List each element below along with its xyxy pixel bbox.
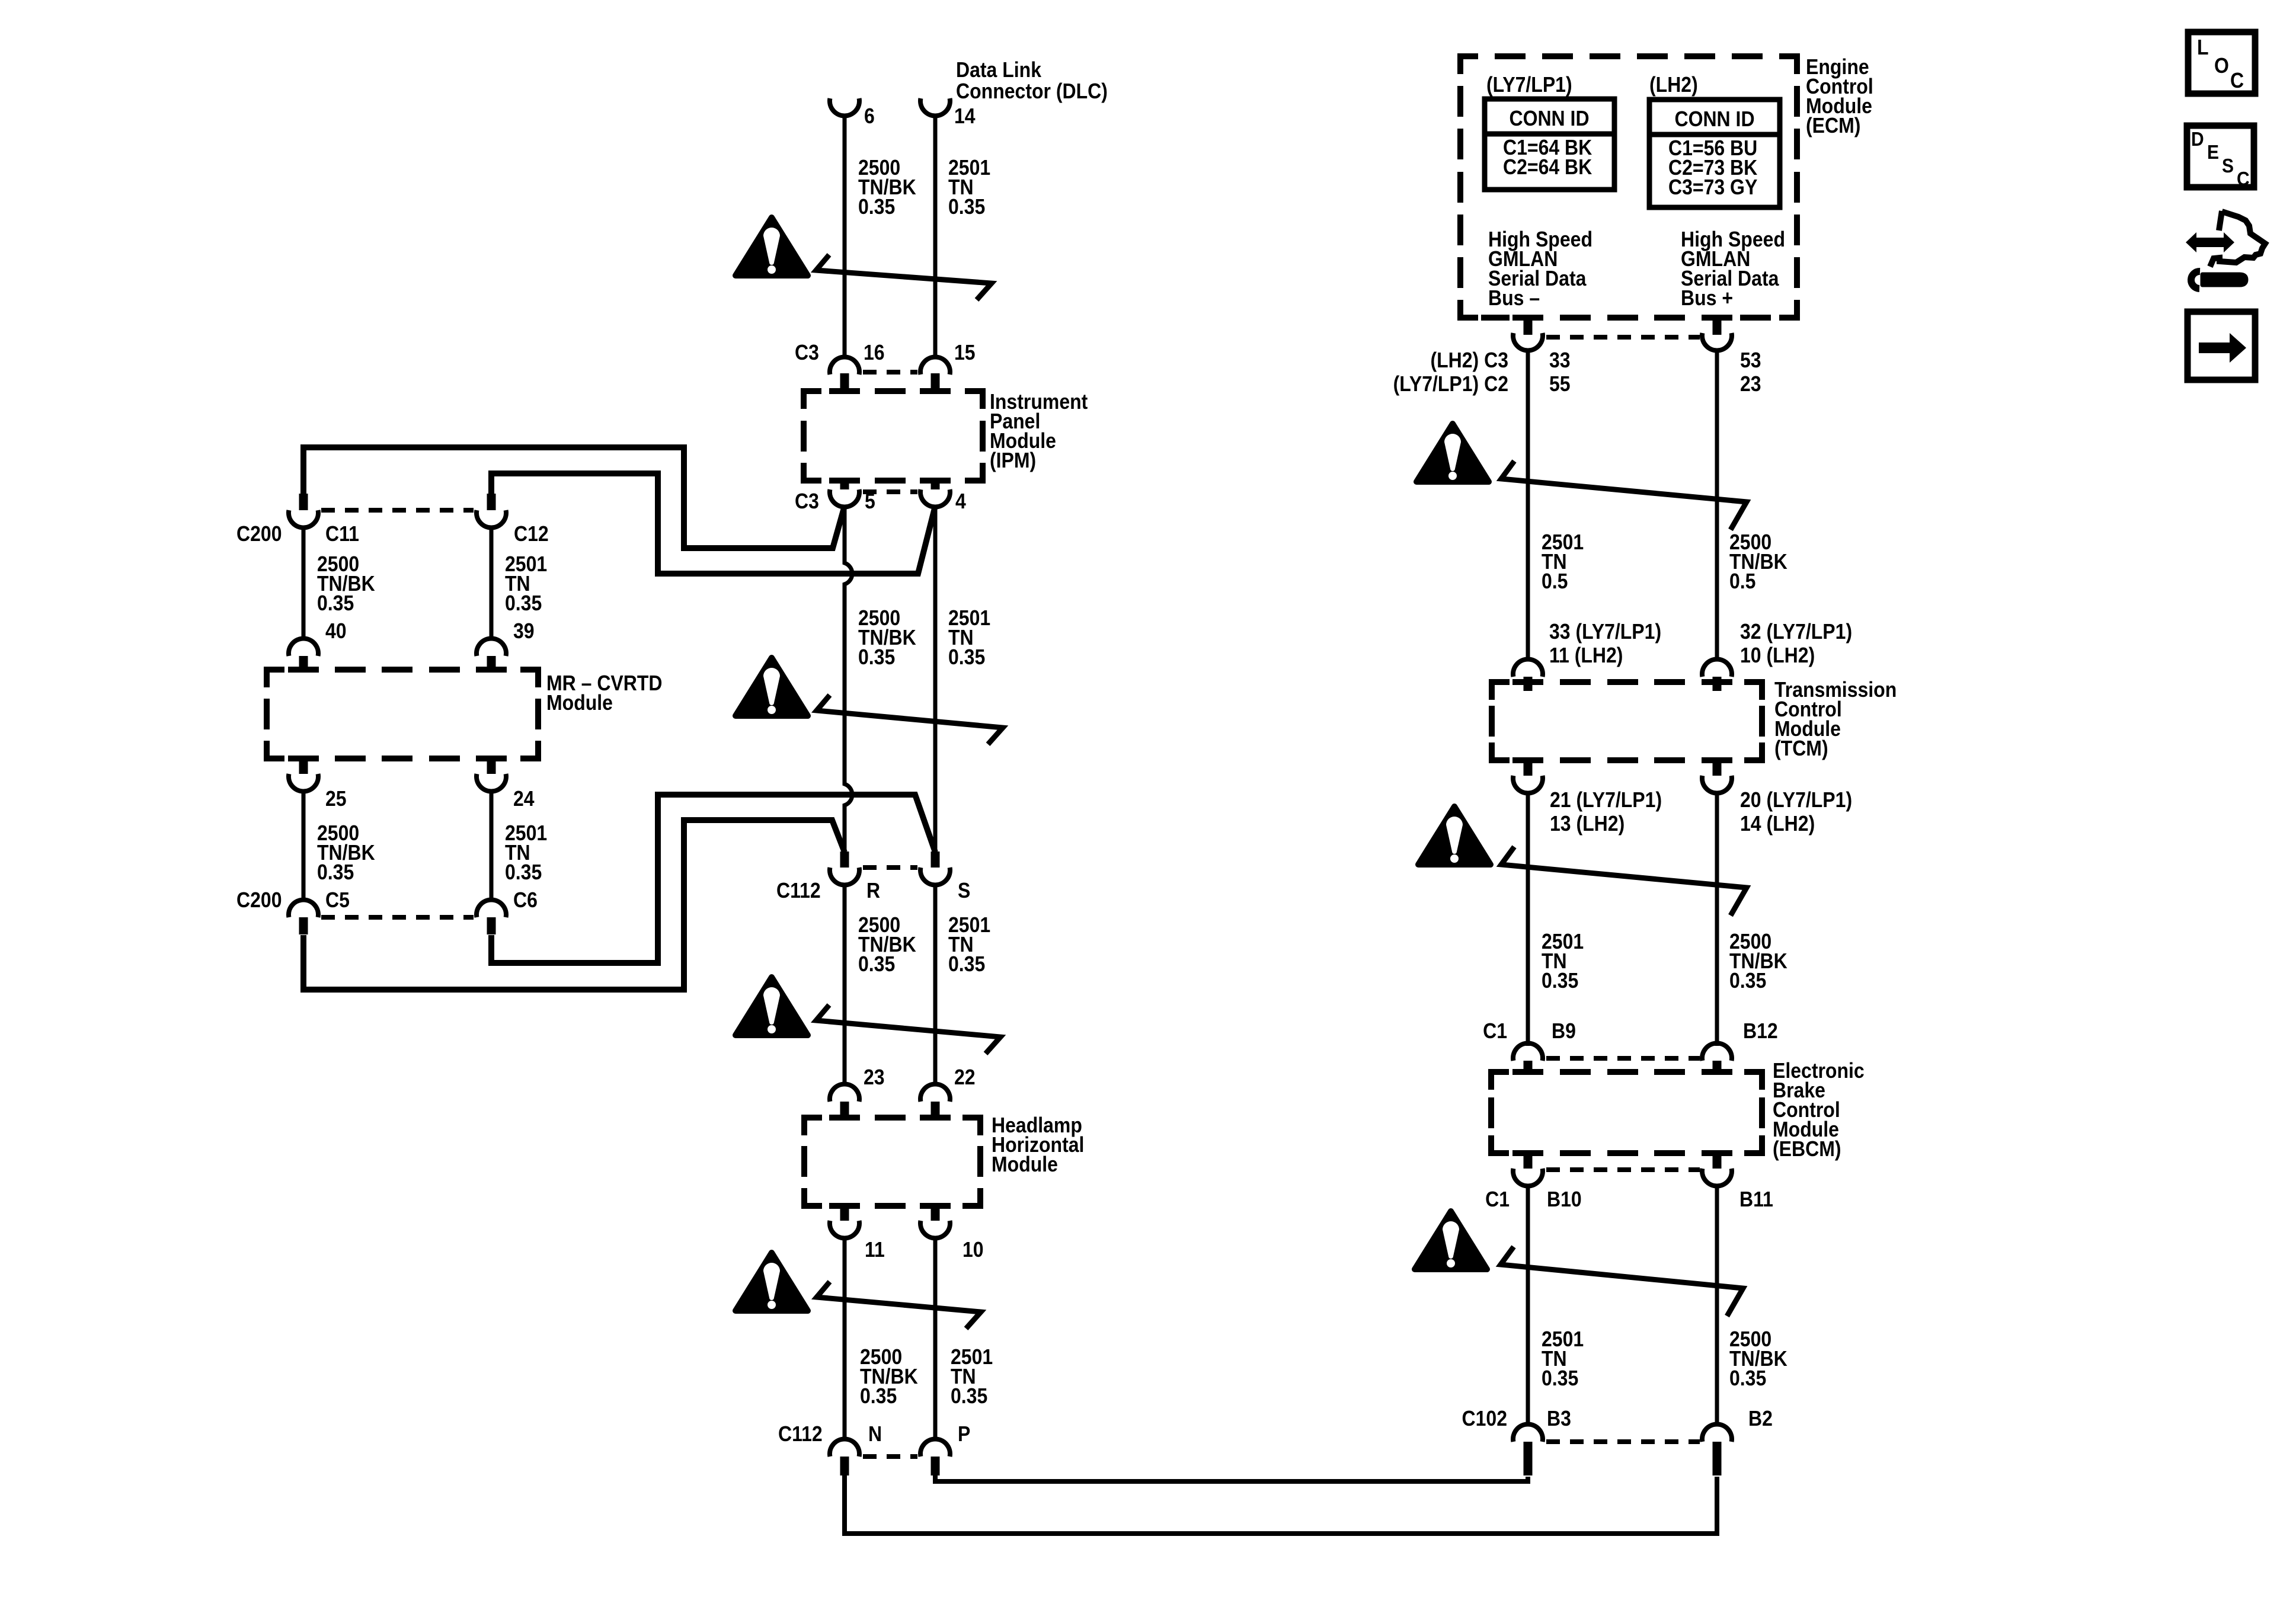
svg-text:0.35: 0.35: [858, 645, 895, 669]
svg-text:(IPM): (IPM): [990, 449, 1036, 472]
svg-text:55: 55: [1549, 372, 1571, 396]
svg-text:(LY7/LP1): (LY7/LP1): [1486, 73, 1572, 97]
svg-text:C12: C12: [514, 522, 549, 546]
svg-text:Bus –: Bus –: [1488, 286, 1540, 310]
svg-text:B11: B11: [1739, 1188, 1773, 1211]
svg-text:B9: B9: [1552, 1019, 1576, 1043]
svg-text:14 (LH2): 14 (LH2): [1740, 812, 1815, 836]
svg-text:40: 40: [325, 619, 347, 643]
svg-text:11 (LH2): 11 (LH2): [1549, 644, 1623, 667]
svg-text:0.35: 0.35: [1729, 969, 1766, 993]
svg-text:B10: B10: [1547, 1188, 1582, 1211]
svg-text:B12: B12: [1743, 1019, 1778, 1043]
svg-text:53: 53: [1740, 348, 1761, 372]
svg-text:0.35: 0.35: [860, 1384, 897, 1408]
svg-text:C1: C1: [1483, 1019, 1507, 1043]
svg-text:0.35: 0.35: [505, 591, 542, 615]
svg-text:(EBCM): (EBCM): [1773, 1137, 1841, 1161]
svg-text:C3=73 GY: C3=73 GY: [1668, 175, 1758, 199]
svg-text:6: 6: [864, 104, 875, 128]
svg-text:0.35: 0.35: [948, 645, 985, 669]
svg-text:0.35: 0.35: [317, 591, 354, 615]
svg-text:C3: C3: [795, 341, 819, 364]
svg-text:C6: C6: [513, 888, 538, 912]
svg-text:Module: Module: [546, 691, 613, 715]
svg-text:10 (LH2): 10 (LH2): [1740, 644, 1815, 667]
svg-text:0.35: 0.35: [1542, 1366, 1578, 1390]
svg-text:E: E: [2207, 140, 2219, 163]
svg-text:CONN ID: CONN ID: [1674, 107, 1754, 131]
svg-text:R: R: [866, 879, 880, 902]
svg-text:B2: B2: [1748, 1407, 1773, 1430]
svg-text:CONN ID: CONN ID: [1509, 107, 1589, 130]
svg-text:24: 24: [513, 787, 535, 811]
svg-text:23: 23: [1740, 372, 1761, 396]
svg-text:C200: C200: [236, 522, 282, 546]
svg-text:22: 22: [954, 1065, 976, 1089]
svg-text:16: 16: [864, 341, 885, 364]
svg-text:0.35: 0.35: [317, 860, 354, 884]
svg-text:Data Link: Data Link: [956, 58, 1041, 82]
svg-text:C: C: [2230, 69, 2244, 92]
svg-text:33: 33: [1549, 348, 1571, 372]
svg-text:D: D: [2191, 127, 2204, 150]
svg-text:21 (LY7/LP1): 21 (LY7/LP1): [1550, 788, 1662, 812]
svg-text:S: S: [958, 879, 970, 902]
svg-text:(LH2) C3: (LH2) C3: [1430, 348, 1508, 372]
svg-text:C3: C3: [795, 489, 819, 513]
svg-text:C200: C200: [236, 888, 282, 912]
svg-text:B3: B3: [1547, 1407, 1571, 1430]
svg-text:33 (LY7/LP1): 33 (LY7/LP1): [1549, 620, 1661, 644]
svg-text:C1: C1: [1485, 1188, 1510, 1211]
svg-text:P: P: [958, 1422, 970, 1446]
svg-text:20 (LY7/LP1): 20 (LY7/LP1): [1740, 788, 1852, 812]
svg-text:15: 15: [954, 341, 976, 364]
svg-text:13 (LH2): 13 (LH2): [1550, 812, 1625, 836]
svg-text:C5: C5: [325, 888, 350, 912]
svg-text:(LH2): (LH2): [1649, 73, 1698, 97]
svg-text:11: 11: [865, 1238, 885, 1262]
svg-text:C112: C112: [778, 1422, 823, 1446]
svg-text:(LY7/LP1) C2: (LY7/LP1) C2: [1393, 372, 1508, 396]
svg-text:C: C: [2237, 167, 2250, 190]
svg-text:0.35: 0.35: [1542, 969, 1578, 993]
svg-text:0.35: 0.35: [1729, 1366, 1766, 1390]
svg-text:Bus +: Bus +: [1681, 286, 1733, 310]
svg-text:0.35: 0.35: [858, 952, 895, 976]
svg-text:L: L: [2197, 36, 2209, 59]
svg-text:Module: Module: [992, 1153, 1058, 1176]
svg-text:0.35: 0.35: [948, 952, 985, 976]
svg-text:Connector (DLC): Connector (DLC): [956, 79, 1108, 103]
svg-text:O: O: [2214, 54, 2229, 78]
svg-text:0.35: 0.35: [505, 860, 542, 884]
svg-text:S: S: [2222, 154, 2234, 177]
svg-text:C2=64 BK: C2=64 BK: [1503, 155, 1593, 179]
svg-text:0.5: 0.5: [1542, 569, 1568, 593]
svg-text:0.35: 0.35: [858, 195, 895, 219]
svg-text:14: 14: [954, 104, 976, 128]
svg-text:N: N: [868, 1422, 882, 1446]
svg-text:C11: C11: [325, 522, 359, 546]
svg-text:32 (LY7/LP1): 32 (LY7/LP1): [1740, 620, 1852, 644]
svg-text:0.35: 0.35: [948, 195, 985, 219]
svg-text:(ECM): (ECM): [1806, 114, 1860, 137]
svg-text:C112: C112: [776, 879, 821, 902]
svg-text:23: 23: [864, 1065, 885, 1089]
svg-text:C102: C102: [1462, 1407, 1507, 1430]
svg-text:(TCM): (TCM): [1774, 737, 1828, 760]
svg-text:25: 25: [325, 787, 347, 811]
svg-text:4: 4: [955, 489, 966, 513]
svg-text:10: 10: [962, 1238, 984, 1262]
svg-text:0.5: 0.5: [1729, 569, 1755, 593]
svg-text:39: 39: [513, 619, 535, 643]
svg-text:0.35: 0.35: [951, 1384, 987, 1408]
